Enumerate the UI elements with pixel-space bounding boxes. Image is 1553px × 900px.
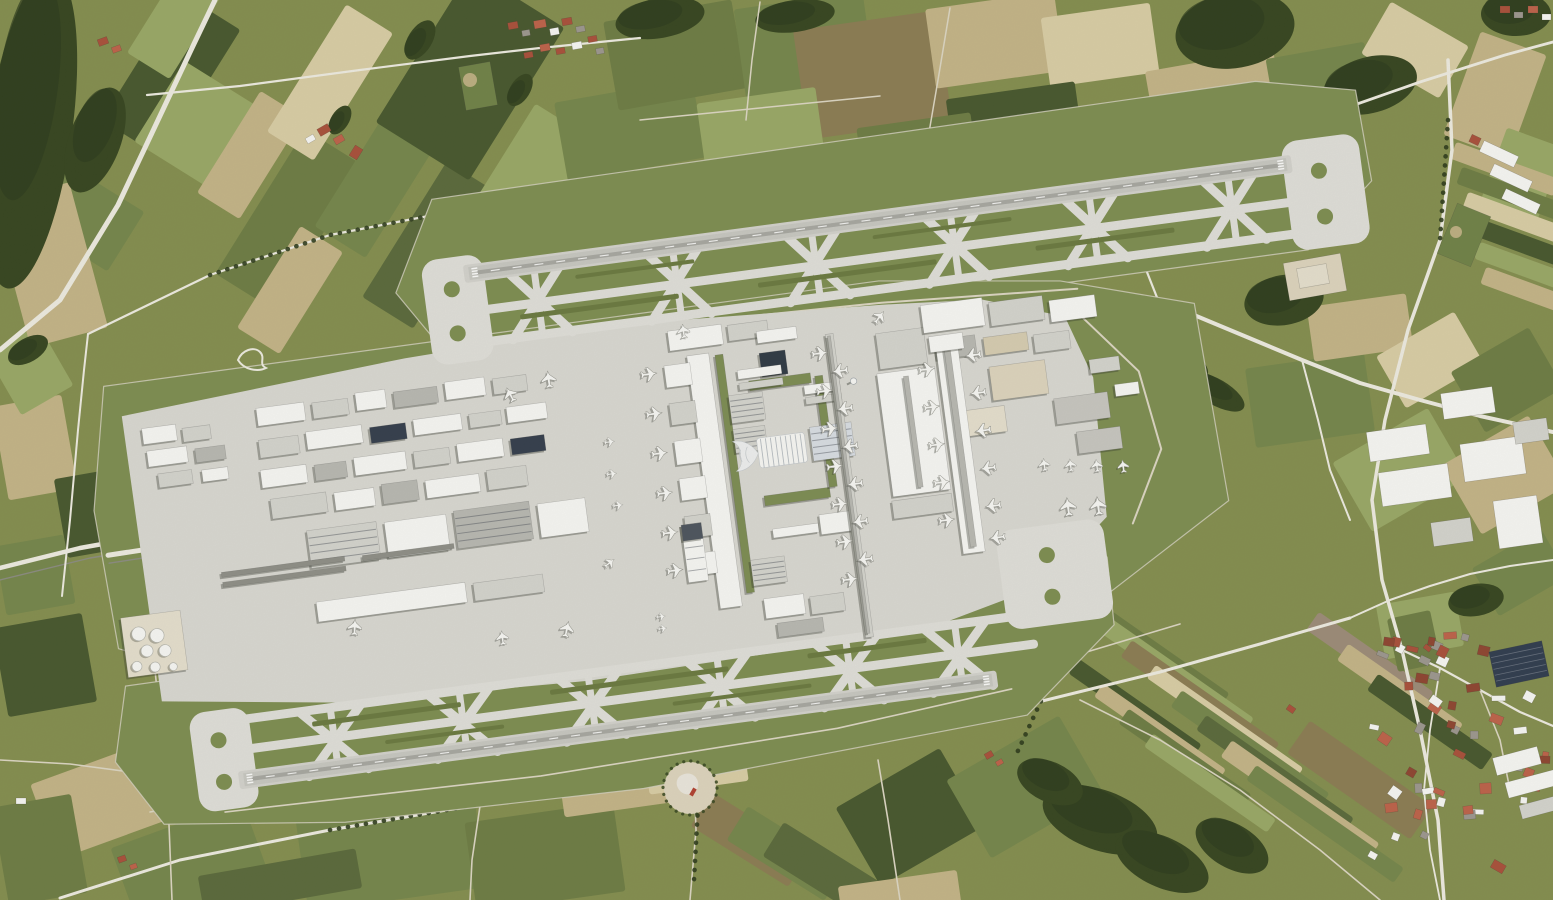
photo-grain-overlay (0, 0, 1553, 900)
aerial-photo-viewport (0, 0, 1553, 900)
airport-aerial-photo (0, 0, 1553, 900)
